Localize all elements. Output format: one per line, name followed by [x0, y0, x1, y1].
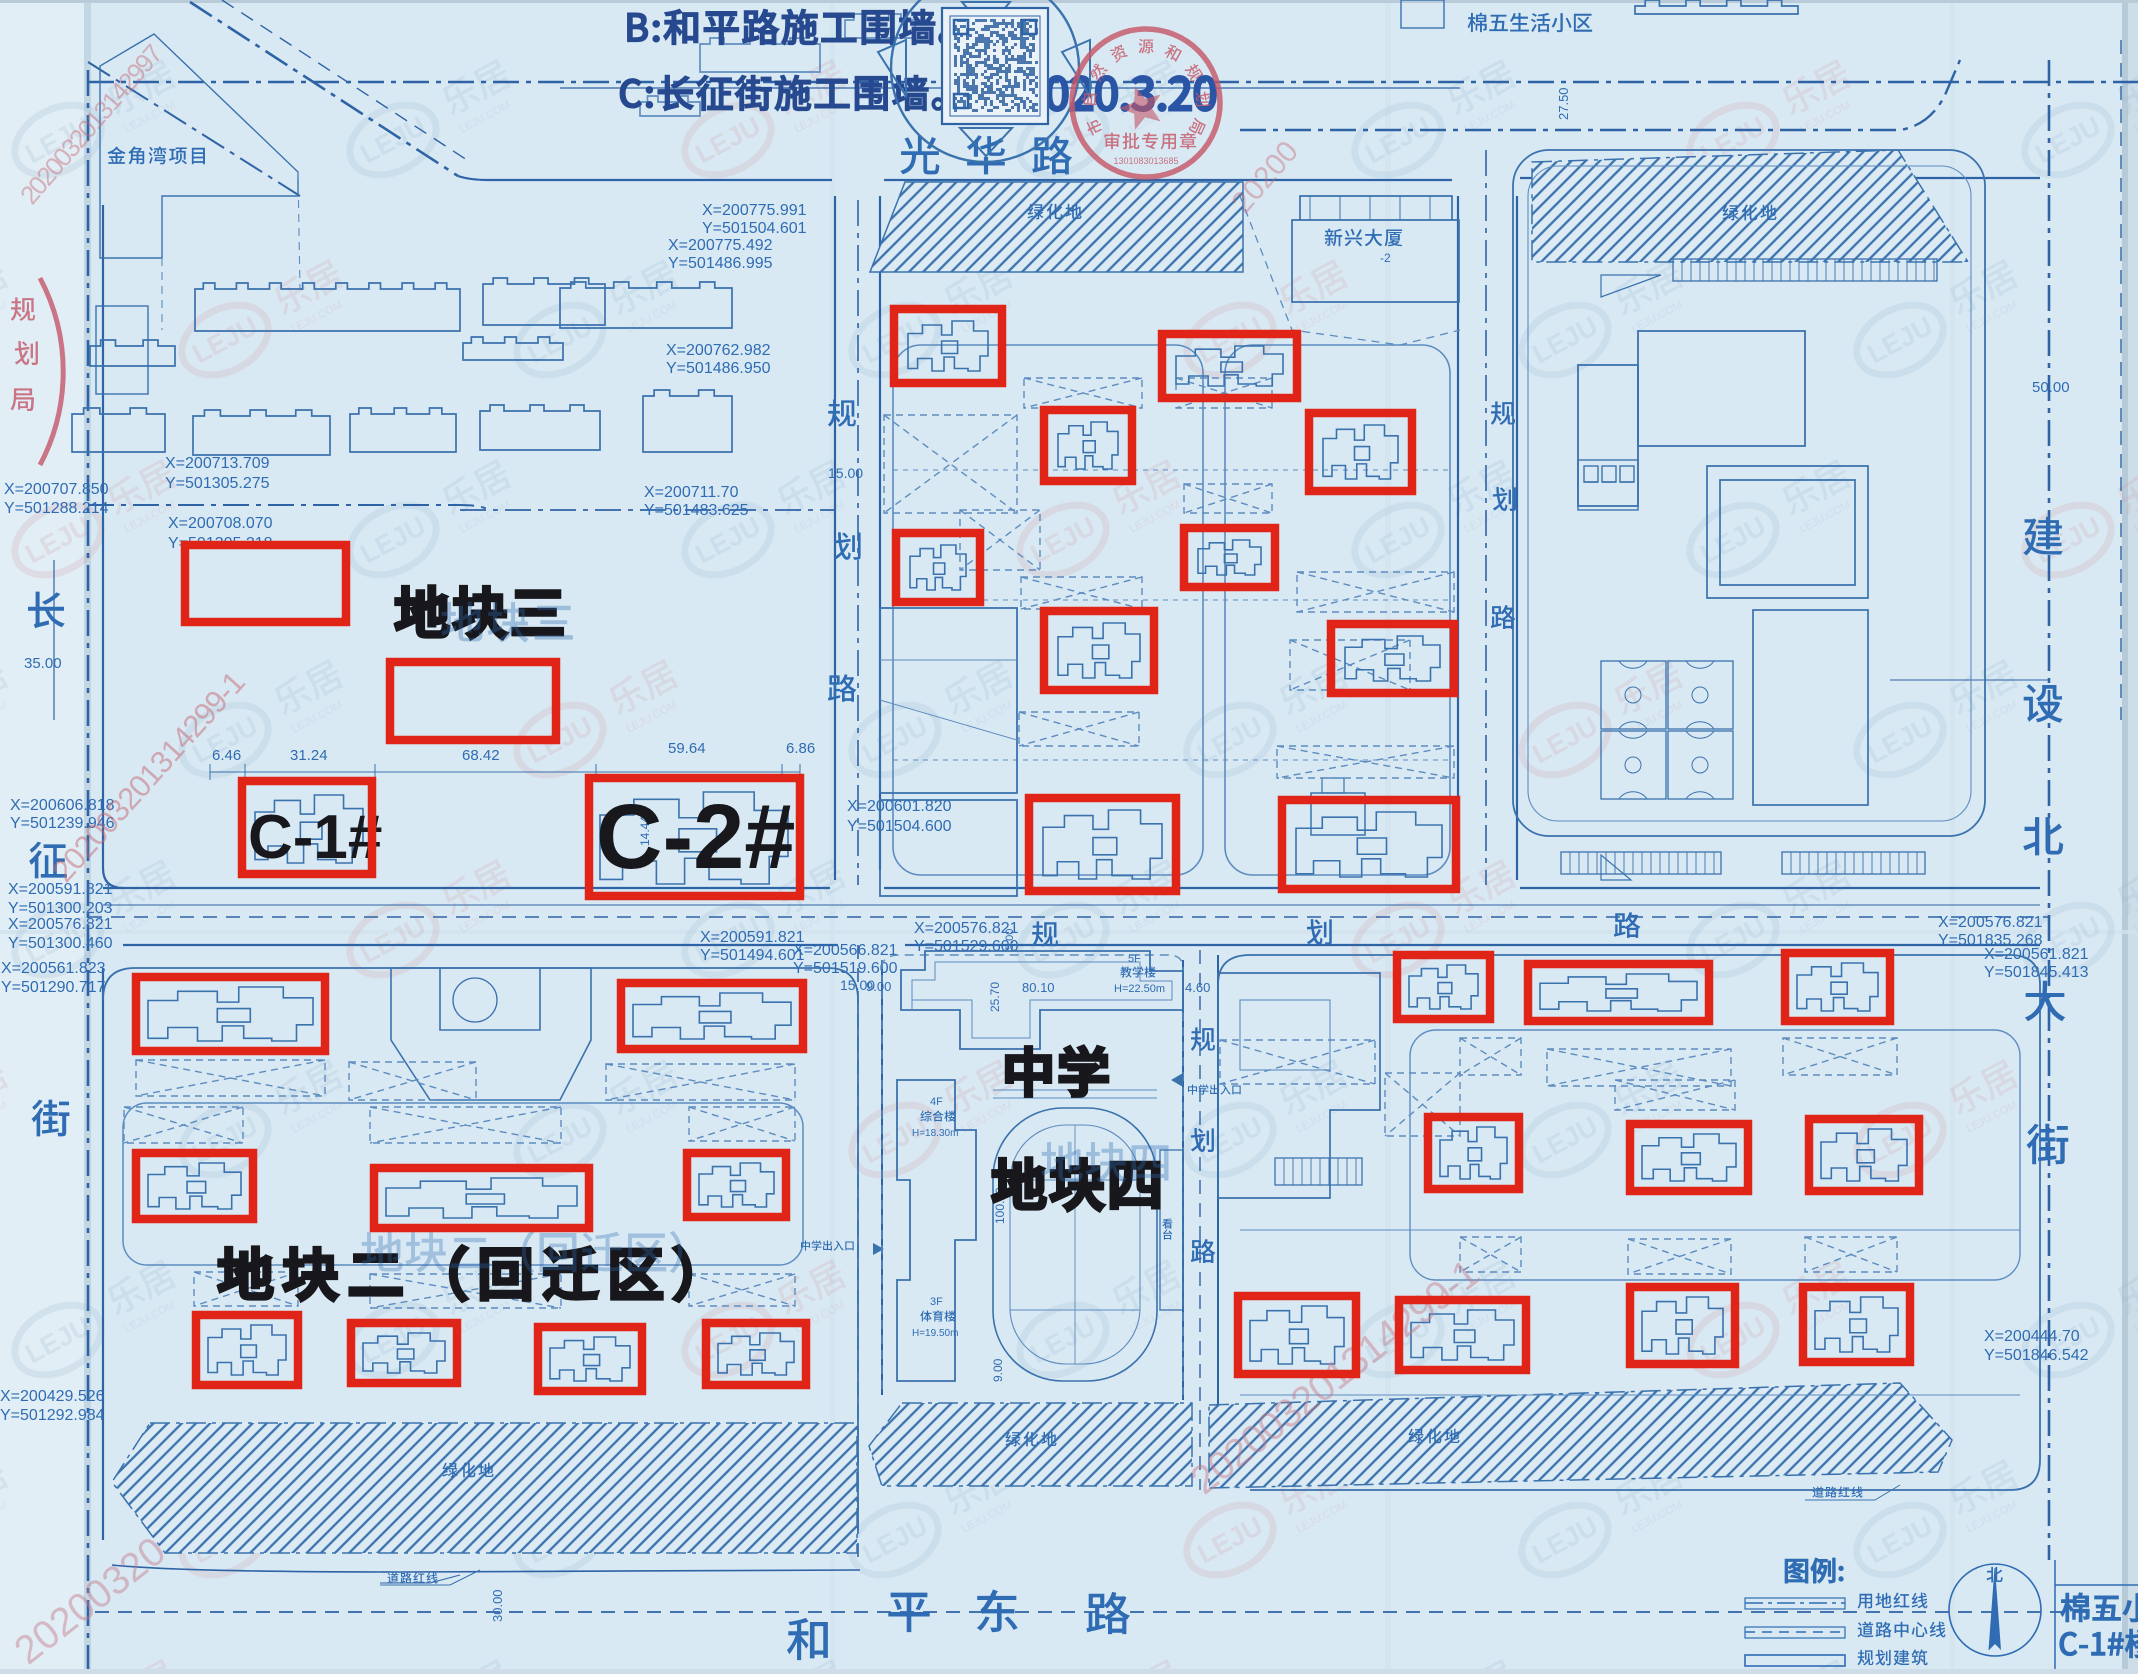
svg-text:X=200566.821: X=200566.821 — [793, 942, 898, 959]
svg-text:H=22.50m: H=22.50m — [1114, 983, 1165, 995]
svg-text:X=200561.823: X=200561.823 — [1, 960, 106, 977]
svg-text:27.50: 27.50 — [1556, 87, 1571, 120]
svg-text:35.00: 35.00 — [24, 655, 62, 672]
svg-text:4F: 4F — [930, 1096, 943, 1108]
svg-text:X=200707.850: X=200707.850 — [4, 481, 109, 498]
svg-text:15.00: 15.00 — [828, 465, 863, 481]
svg-text:X=200444.70: X=200444.70 — [1984, 1328, 2080, 1345]
svg-text:X=200713.709: X=200713.709 — [165, 455, 270, 472]
svg-text:X=200591.821: X=200591.821 — [8, 881, 113, 898]
svg-text:H=19.50m: H=19.50m — [912, 1328, 958, 1339]
svg-text:X=200591.821: X=200591.821 — [700, 929, 805, 946]
svg-text:5.00: 5.00 — [1004, 929, 1016, 950]
svg-text:X=200576.821: X=200576.821 — [914, 920, 1019, 937]
svg-text:Y=501486.995: Y=501486.995 — [668, 255, 773, 272]
svg-text:-2: -2 — [1380, 251, 1391, 265]
svg-text:Y=501292.984: Y=501292.984 — [0, 1407, 105, 1424]
svg-text:X=200775.991: X=200775.991 — [702, 202, 807, 219]
svg-text:Y=501486.950: Y=501486.950 — [666, 360, 771, 377]
svg-text:X=200711.70: X=200711.70 — [644, 484, 739, 501]
svg-text:59.64: 59.64 — [668, 740, 706, 757]
svg-text:Y=501504.600: Y=501504.600 — [847, 818, 952, 835]
svg-text:X=200762.982: X=200762.982 — [666, 342, 771, 359]
svg-text:Y=501835.268: Y=501835.268 — [1938, 932, 2043, 949]
svg-text:X=200708.070: X=200708.070 — [168, 515, 273, 532]
svg-text:Y=501300.203: Y=501300.203 — [8, 900, 113, 917]
svg-text:5F: 5F — [1128, 953, 1141, 965]
svg-text:3F: 3F — [930, 1296, 943, 1308]
svg-text:1301083013685: 1301083013685 — [1113, 156, 1178, 166]
svg-text:9.00: 9.00 — [991, 1358, 1005, 1382]
svg-text:31.24: 31.24 — [290, 747, 328, 764]
svg-text:25.70: 25.70 — [988, 982, 1002, 1012]
svg-text:X=200775.492: X=200775.492 — [668, 237, 773, 254]
svg-text:80.10: 80.10 — [1022, 980, 1055, 995]
svg-text:C-2#: C-2# — [596, 786, 795, 888]
svg-text:30.00: 30.00 — [490, 1589, 505, 1622]
svg-text:Y=501300.460: Y=501300.460 — [8, 935, 113, 952]
svg-text:C-1#: C-1# — [248, 803, 382, 872]
svg-text:4.60: 4.60 — [1185, 980, 1210, 995]
svg-text:6.46: 6.46 — [212, 747, 241, 764]
svg-text:X=200576.821: X=200576.821 — [1938, 914, 2043, 931]
svg-text:H=18.30m: H=18.30m — [912, 1128, 958, 1139]
svg-text:6.86: 6.86 — [786, 740, 815, 757]
svg-text:Y=501305.275: Y=501305.275 — [165, 475, 270, 492]
svg-text:50.00: 50.00 — [2032, 379, 2070, 396]
svg-text:X=200576.821: X=200576.821 — [8, 916, 113, 933]
svg-text:Y=501288.214: Y=501288.214 — [4, 500, 109, 517]
svg-text:9.00: 9.00 — [866, 979, 891, 994]
svg-text:Y=501494.601: Y=501494.601 — [700, 947, 805, 964]
svg-text:X=200429.526: X=200429.526 — [0, 1388, 105, 1405]
svg-text:Y=501504.601: Y=501504.601 — [702, 220, 807, 237]
svg-text:Y=501846.542: Y=501846.542 — [1984, 1347, 2089, 1364]
svg-text:Y=501529.600: Y=501529.600 — [914, 938, 1019, 955]
svg-text:68.42: 68.42 — [462, 747, 500, 764]
svg-text:Y=501483.625: Y=501483.625 — [644, 502, 749, 519]
svg-text:Y=501290.717: Y=501290.717 — [1, 979, 106, 996]
